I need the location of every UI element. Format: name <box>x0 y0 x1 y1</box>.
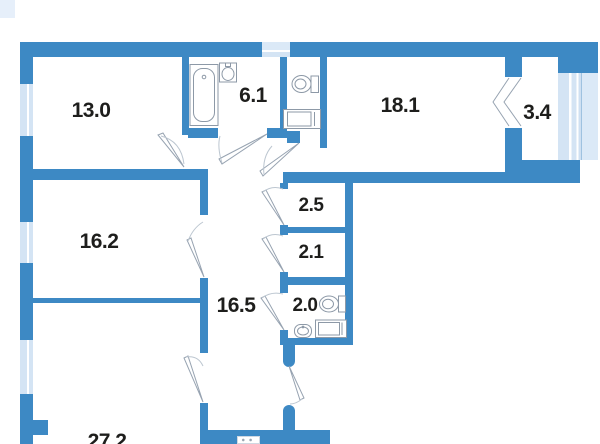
room-label-3-4: 3.4 <box>523 101 551 125</box>
room-label-2-5: 2.5 <box>299 195 324 217</box>
door-wc-top-icon <box>260 143 299 176</box>
washing-machine-icon <box>284 110 321 129</box>
room-label-18-1: 18.1 <box>381 94 420 118</box>
toilet-icon <box>292 76 319 93</box>
door-room162-icon <box>187 222 204 277</box>
door-storage21-icon <box>262 235 284 272</box>
door-storage25-icon <box>262 188 284 225</box>
sink-icon-2 <box>295 325 312 338</box>
floor-plan: 13.0 6.1 18.1 3.4 16.2 16.5 2.5 2.1 2.0 … <box>0 0 600 444</box>
door-wc20-icon <box>261 293 284 330</box>
room-label-27-2: 27.2 <box>88 430 127 444</box>
fixtures-overlay <box>0 0 600 444</box>
door-room13-icon <box>158 133 184 167</box>
room-label-16-2: 16.2 <box>80 230 119 254</box>
sink-icon <box>220 63 237 82</box>
bottom-wall-marker-icon <box>237 436 260 444</box>
door-room272-icon <box>184 356 203 402</box>
door-bathroom-icon <box>219 134 267 164</box>
room-label-2-0: 2.0 <box>293 295 318 317</box>
bathtub-icon <box>190 65 218 126</box>
entrance-door-icon <box>289 366 304 404</box>
room-label-6-1: 6.1 <box>239 84 267 108</box>
room-label-16-5: 16.5 <box>217 294 256 318</box>
room-label-13-0: 13.0 <box>72 99 111 123</box>
toilet-icon-2 <box>320 296 346 312</box>
washing-machine-icon-2 <box>316 320 347 338</box>
room-label-2-1: 2.1 <box>299 242 324 264</box>
balcony-folding-door-icon <box>493 78 521 126</box>
